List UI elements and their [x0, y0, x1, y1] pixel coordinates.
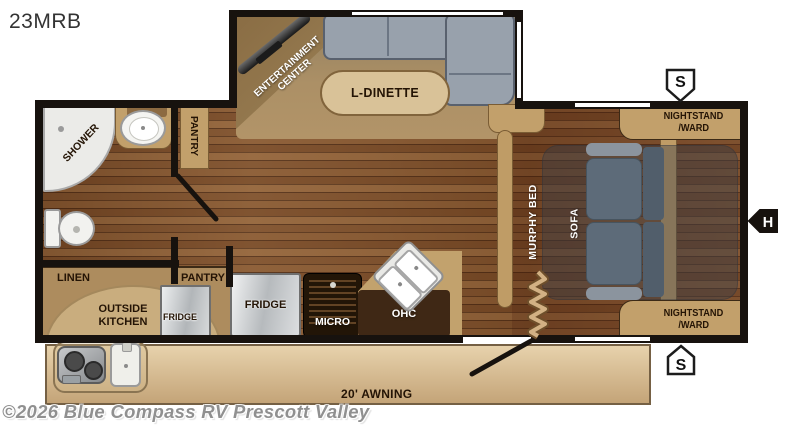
bathroom-door-swing: [178, 176, 216, 219]
water-heater-marker-letter: H: [763, 215, 773, 231]
speaker-marker-bottom-letter: S: [676, 357, 687, 374]
floorplan-image: 23MRB ENTERTAINMENT CENTER L-DINETTE SHO…: [0, 0, 800, 428]
dealer-watermark: ©2026 Blue Compass RV Prescott Valley: [2, 401, 369, 423]
entry-door-swing: [472, 341, 531, 374]
speaker-marker-top-letter: S: [675, 74, 686, 91]
overlay-graphics: S S H: [0, 0, 800, 428]
